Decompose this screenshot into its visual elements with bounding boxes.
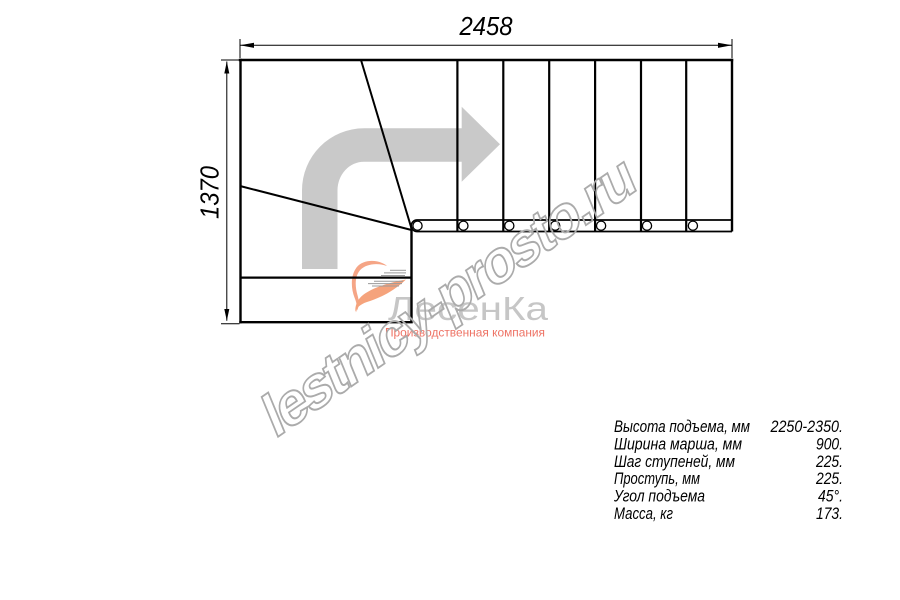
svg-text:2458: 2458 (459, 13, 514, 41)
svg-text:Ширина марша, мм: Ширина марша, мм (614, 435, 742, 453)
svg-text:2250-2350.: 2250-2350. (770, 418, 843, 436)
svg-text:Проступь, мм: Проступь, мм (614, 470, 700, 488)
svg-text:225.: 225. (815, 470, 843, 488)
svg-text:Шаг ступеней, мм: Шаг ступеней, мм (614, 453, 735, 471)
svg-text:173.: 173. (816, 505, 843, 523)
svg-text:900.: 900. (816, 435, 843, 453)
svg-text:Высота подъема, мм: Высота подъема, мм (614, 418, 750, 436)
svg-text:225.: 225. (815, 453, 843, 471)
svg-text:Угол подъема: Угол подъема (613, 488, 705, 506)
svg-text:45°.: 45°. (818, 488, 843, 506)
svg-text:Масса, кг: Масса, кг (614, 505, 673, 523)
svg-text:1370: 1370 (197, 166, 225, 219)
